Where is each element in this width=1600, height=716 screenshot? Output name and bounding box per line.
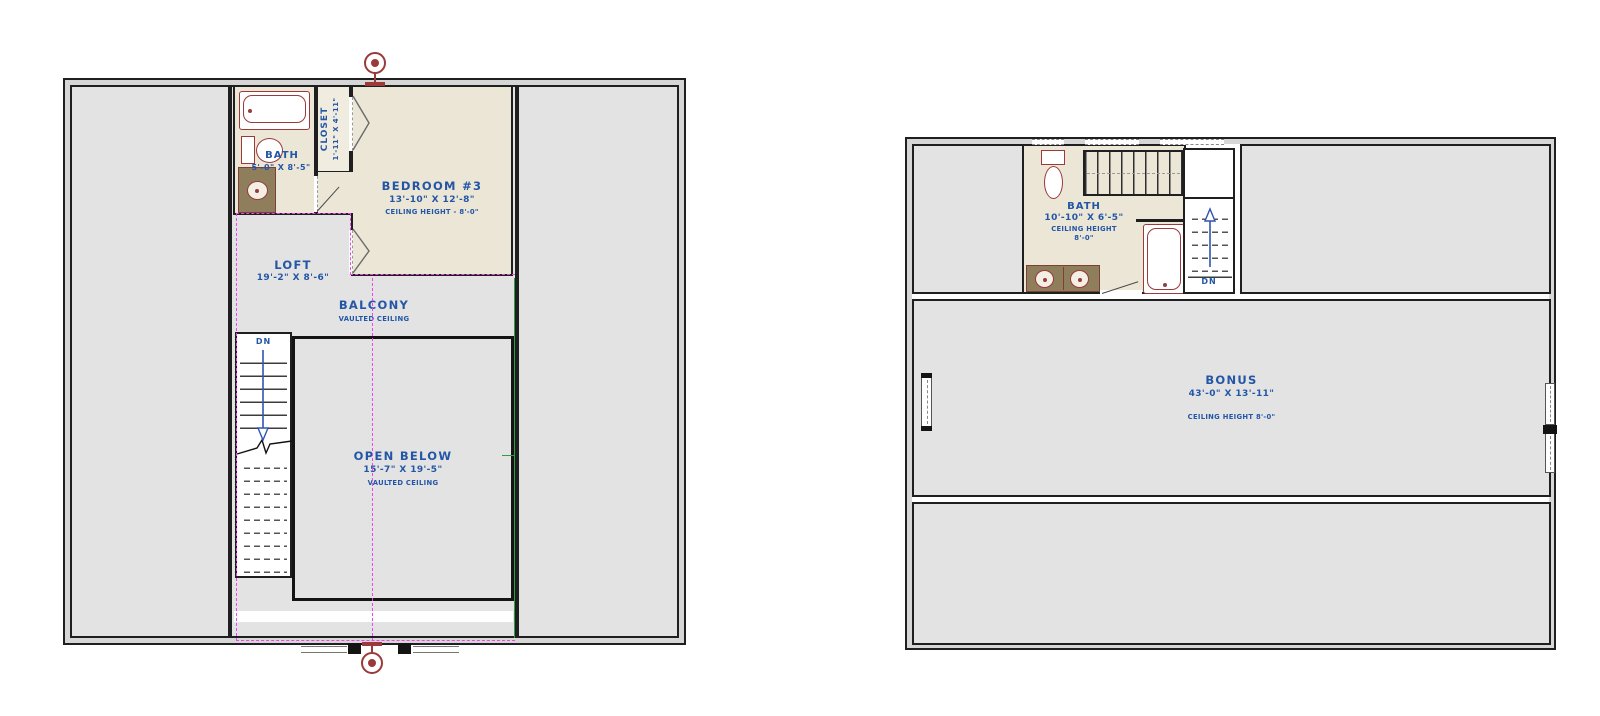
closet-bifold-door-icon: [353, 96, 373, 152]
bedroom-bifold-door-icon: [353, 229, 373, 275]
post: [398, 643, 411, 654]
attic-space-right: [1240, 144, 1551, 294]
closet-label: CLOSET: [320, 85, 332, 173]
window: [1160, 139, 1224, 145]
balcony-ceiling-note: VAULTED CEILING: [231, 315, 517, 324]
attic-slope-line: [236, 640, 515, 641]
balcony-edge-line: [514, 278, 515, 638]
floor-plan-sheet: OPEN BELOW 15'-7" X 19'-5" VAULTED CEILI…: [0, 0, 1600, 716]
bath-dims: 5'-0" X 8'-5": [245, 163, 317, 173]
stairs-down: DN: [1183, 197, 1235, 294]
bath-ceiling-note: CEILING HEIGHT: [1024, 225, 1144, 234]
loft-dims: 19'-2" X 8'-6": [233, 273, 353, 285]
stairs-dn-label: DN: [1185, 277, 1233, 287]
bath-dims: 10'-10" X 6'-5": [1024, 213, 1144, 225]
open-below-label: OPEN BELOW: [295, 449, 511, 464]
stair-landing: [1183, 148, 1235, 199]
window: [921, 377, 932, 427]
ridge-centerline: [372, 278, 373, 641]
stair-direction-arrow-icon: [1200, 209, 1220, 271]
bonus-room: BONUS 43'-0" X 13'-11" CEILING HEIGHT 8'…: [912, 299, 1551, 497]
bath-door-opening: [314, 176, 318, 212]
stair-direction-arrow-icon: [253, 350, 273, 445]
bedroom-entry-alcove: [316, 172, 353, 215]
bath-room: BATH 10'-10" X 6'-5" CEILING HEIGHT 8'-0…: [1022, 144, 1186, 294]
edge-tick: [502, 455, 515, 456]
window-mullion: [1543, 425, 1557, 434]
closet-label-block: CLOSET 1'-11" X 4'-11": [320, 85, 346, 173]
closet-shelving: [1083, 150, 1184, 196]
open-below-ceiling-note: VAULTED CEILING: [295, 479, 511, 488]
post: [348, 643, 361, 654]
toilet-icon: [1041, 150, 1065, 165]
balcony-label: BALCONY: [231, 298, 517, 313]
vanity-cabinet-icon: [238, 167, 276, 213]
open-below-area: OPEN BELOW 15'-7" X 19'-5" VAULTED CEILI…: [292, 336, 514, 601]
attic-space-right: [517, 85, 679, 638]
window-cap: [921, 373, 932, 378]
bedroom3-label: BEDROOM #3: [353, 179, 511, 194]
left-floor-plan: OPEN BELOW 15'-7" X 19'-5" VAULTED CEILI…: [63, 78, 686, 645]
window: [1085, 139, 1139, 145]
bathtub-icon: [1143, 224, 1185, 294]
stairs-down: DN: [235, 332, 292, 578]
window: [1545, 433, 1555, 473]
toilet-bowl-icon: [1044, 166, 1063, 199]
attic-space-left: [912, 144, 1024, 294]
bathtub-icon: [239, 91, 310, 130]
window: [1032, 139, 1064, 145]
wall-stub: [1136, 219, 1188, 222]
double-vanity-icon: [1026, 265, 1100, 292]
bath-room: BATH 5'-0" X 8'-5": [233, 85, 316, 215]
bedroom3-dims: 13'-10" X 12'-8": [353, 195, 511, 207]
closet-dims: 1'-11" X 4'-11": [332, 85, 341, 173]
right-floor-plan: BATH 10'-10" X 6'-5" CEILING HEIGHT 8'-0…: [905, 137, 1556, 650]
open-below-dims: 15'-7" X 19'-5": [295, 465, 511, 477]
window: [1545, 383, 1555, 425]
stairs-dn-label: DN: [237, 337, 290, 347]
bedroom3-ceiling-note: CEILING HEIGHT - 8'-0": [353, 208, 511, 217]
attic-slope-line: [350, 274, 515, 275]
bonus-label: BONUS: [914, 373, 1549, 388]
bonus-ceiling-note: CEILING HEIGHT 8'-0": [914, 413, 1549, 422]
bonus-dims: 43'-0" X 13'-11": [914, 389, 1549, 401]
attic-slope-line: [350, 213, 351, 275]
attic-slope-line: [236, 213, 237, 641]
window-cap: [921, 426, 932, 431]
lower-wall-band: [234, 611, 513, 622]
window: [301, 646, 347, 653]
stair-treads-hidden: [240, 456, 287, 574]
bedroom3-room: BEDROOM #3 13'-10" X 12'-8" CEILING HEIG…: [351, 85, 513, 276]
bath-label: BATH: [1024, 200, 1144, 213]
attic-space-left: [70, 85, 230, 638]
storage-space-bottom: [912, 502, 1551, 645]
attic-slope-line: [236, 213, 351, 214]
loft-label: LOFT: [233, 258, 353, 273]
bath-ceiling-note-2: 8'-0": [1024, 234, 1144, 243]
bath-label: BATH: [249, 149, 315, 162]
window: [413, 646, 459, 653]
